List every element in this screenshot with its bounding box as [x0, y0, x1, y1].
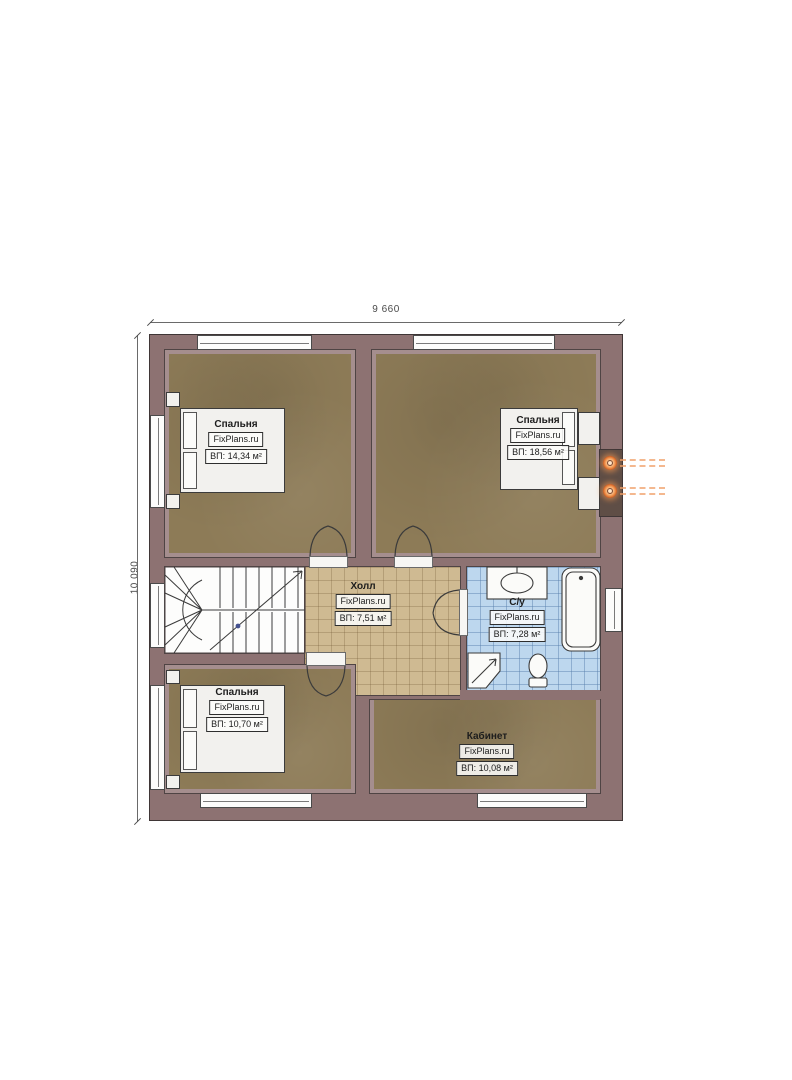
room-label-bathroom: С/у FixPlans.ru ВП: 7,28 м²: [489, 597, 546, 642]
dimension-tick-icon: [134, 818, 141, 825]
room-label-bedroom-bottom-left: Спальня FixPlans.ru ВП: 10,70 м²: [206, 687, 268, 732]
dimension-height-label: 10 090: [129, 561, 140, 595]
dimension-width-label: 9 660: [372, 304, 400, 315]
sink-icon: [501, 573, 533, 593]
room-area: ВП: 10,70 м²: [206, 717, 268, 732]
room-label-bedroom-top-left: Спальня FixPlans.ru ВП: 14,34 м²: [205, 419, 267, 464]
room-name: Кабинет: [467, 731, 507, 742]
room-name: Холл: [350, 581, 375, 592]
brand-badge: FixPlans.ru: [510, 428, 565, 443]
room-area: ВП: 18,56 м²: [507, 445, 569, 460]
floor-plan: Спальня FixPlans.ru ВП: 14,34 м² Спальня…: [150, 335, 622, 820]
room-label-hall: Холл FixPlans.ru ВП: 7,51 м²: [335, 581, 392, 626]
sconce-ray-icon: [620, 465, 665, 467]
sconce-icon: [603, 456, 617, 470]
dimension-width-line: [150, 322, 622, 323]
brand-badge: FixPlans.ru: [489, 610, 544, 625]
sconce-icon: [603, 484, 617, 498]
bathtub-icon: [562, 568, 600, 651]
sconce-ray-icon: [620, 487, 665, 489]
dimension-height-line: [137, 335, 138, 822]
brand-badge: FixPlans.ru: [208, 432, 263, 447]
brand-badge: FixPlans.ru: [335, 594, 390, 609]
room-name: Спальня: [214, 419, 257, 430]
brand-badge: FixPlans.ru: [459, 744, 514, 759]
room-area: ВП: 10,08 м²: [456, 761, 518, 776]
room-name: Спальня: [516, 415, 559, 426]
room-name: Спальня: [215, 687, 258, 698]
room-label-office: Кабинет FixPlans.ru ВП: 10,08 м²: [456, 731, 518, 776]
room-area: ВП: 7,28 м²: [489, 627, 546, 642]
room-name: С/у: [509, 597, 525, 608]
room-area: ВП: 14,34 м²: [205, 449, 267, 464]
sconce-ray-icon: [620, 459, 665, 461]
sconce-ray-icon: [620, 493, 665, 495]
floor-plan-canvas: 9 660 10 090: [0, 0, 792, 1080]
staircase-icon: [165, 567, 305, 653]
plan-linework: [150, 335, 622, 820]
toilet-tank: [529, 678, 547, 687]
toilet-icon: [529, 654, 547, 678]
dimension-tick-icon: [618, 319, 625, 326]
brand-badge: FixPlans.ru: [209, 700, 264, 715]
room-label-bedroom-top-right: Спальня FixPlans.ru ВП: 18,56 м²: [507, 415, 569, 460]
room-area: ВП: 7,51 м²: [335, 611, 392, 626]
